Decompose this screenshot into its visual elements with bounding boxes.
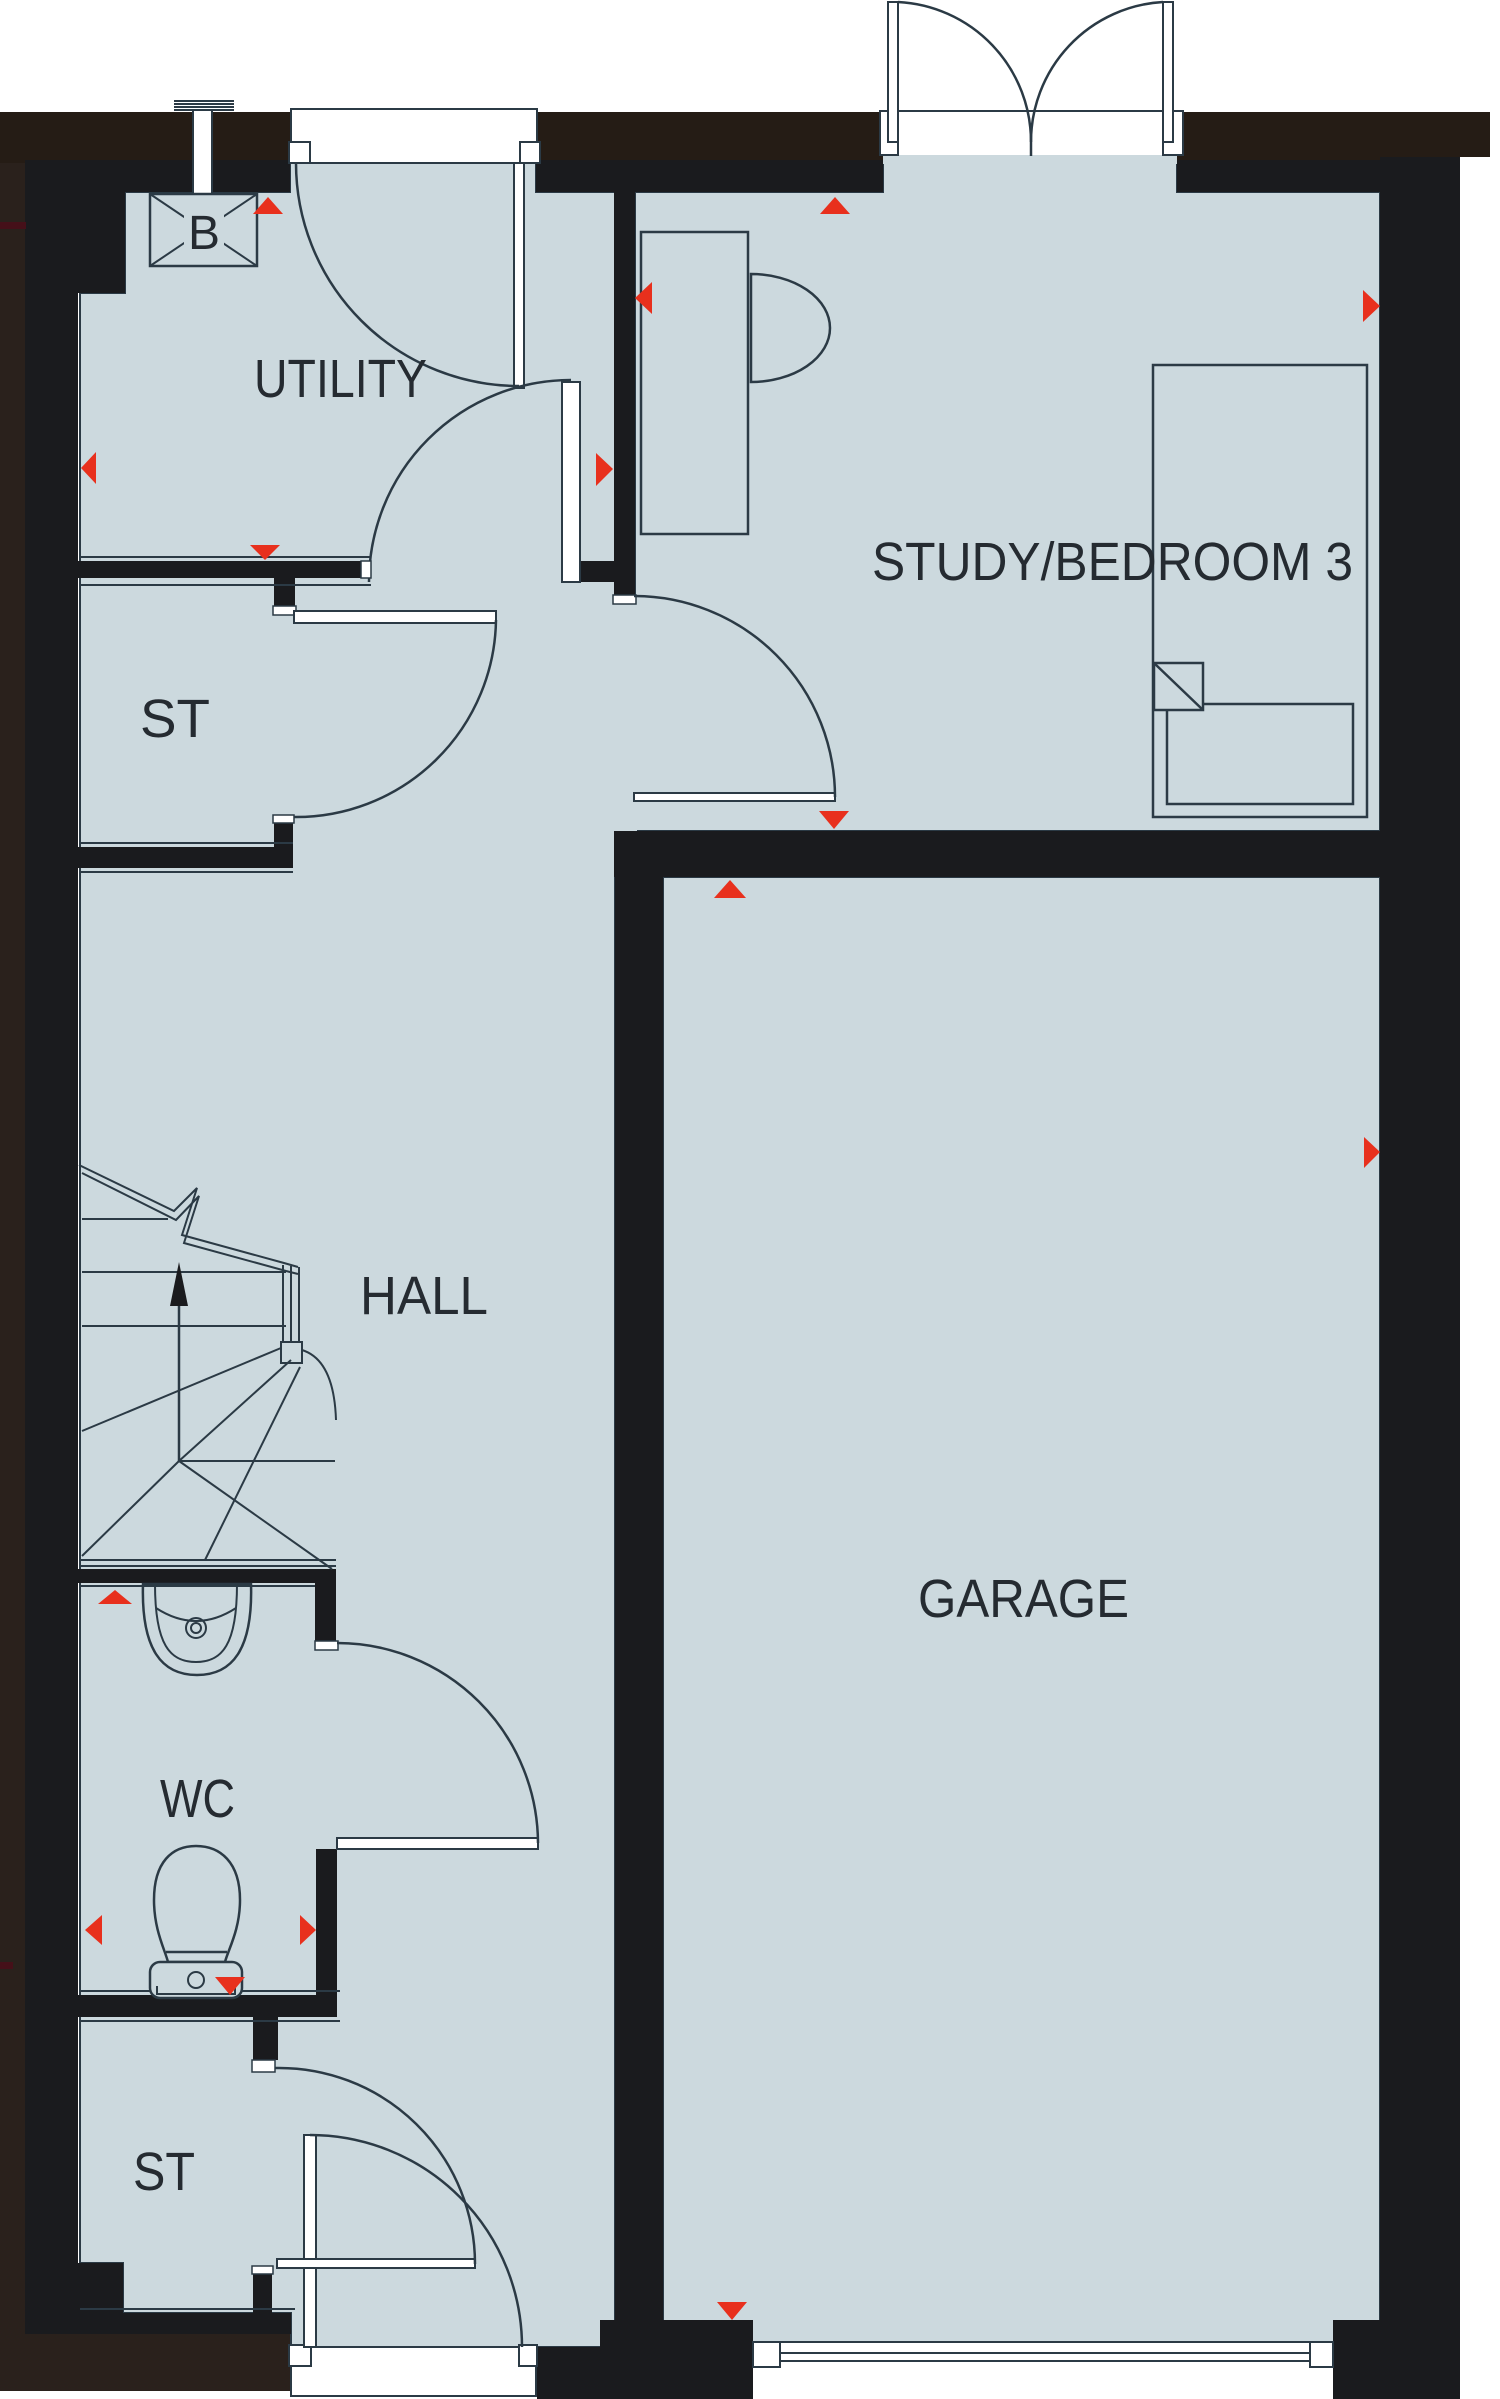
svg-text:ST: ST bbox=[140, 689, 210, 749]
svg-text:ST: ST bbox=[133, 2142, 195, 2202]
svg-text:HALL: HALL bbox=[360, 1266, 488, 1326]
svg-text:WC: WC bbox=[160, 1769, 235, 1829]
svg-text:B: B bbox=[188, 207, 220, 260]
svg-text:UTILITY: UTILITY bbox=[254, 349, 427, 409]
svg-text:GARAGE: GARAGE bbox=[918, 1569, 1129, 1629]
svg-text:STUDY/BEDROOM 3: STUDY/BEDROOM 3 bbox=[872, 532, 1353, 592]
